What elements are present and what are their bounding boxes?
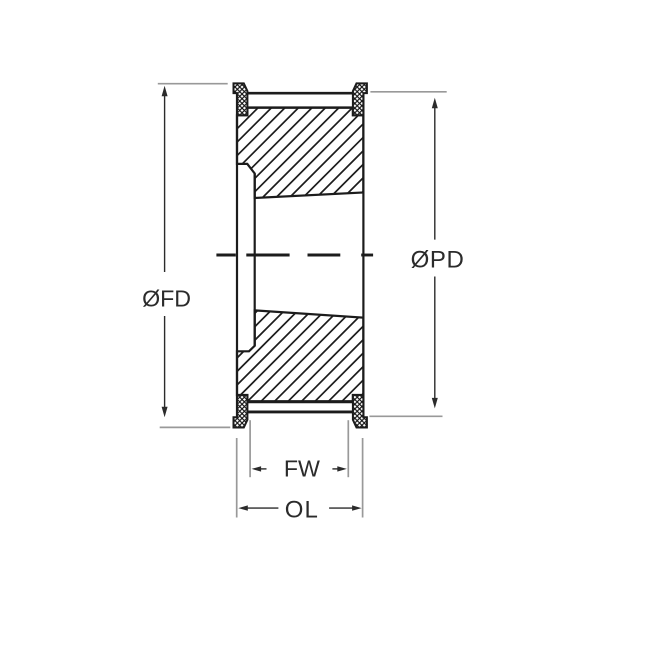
svg-text:ØPD: ØPD [411,246,465,273]
svg-text:OL: OL [285,496,319,523]
svg-text:FW: FW [284,456,320,482]
svg-text:ØFD: ØFD [142,286,191,312]
